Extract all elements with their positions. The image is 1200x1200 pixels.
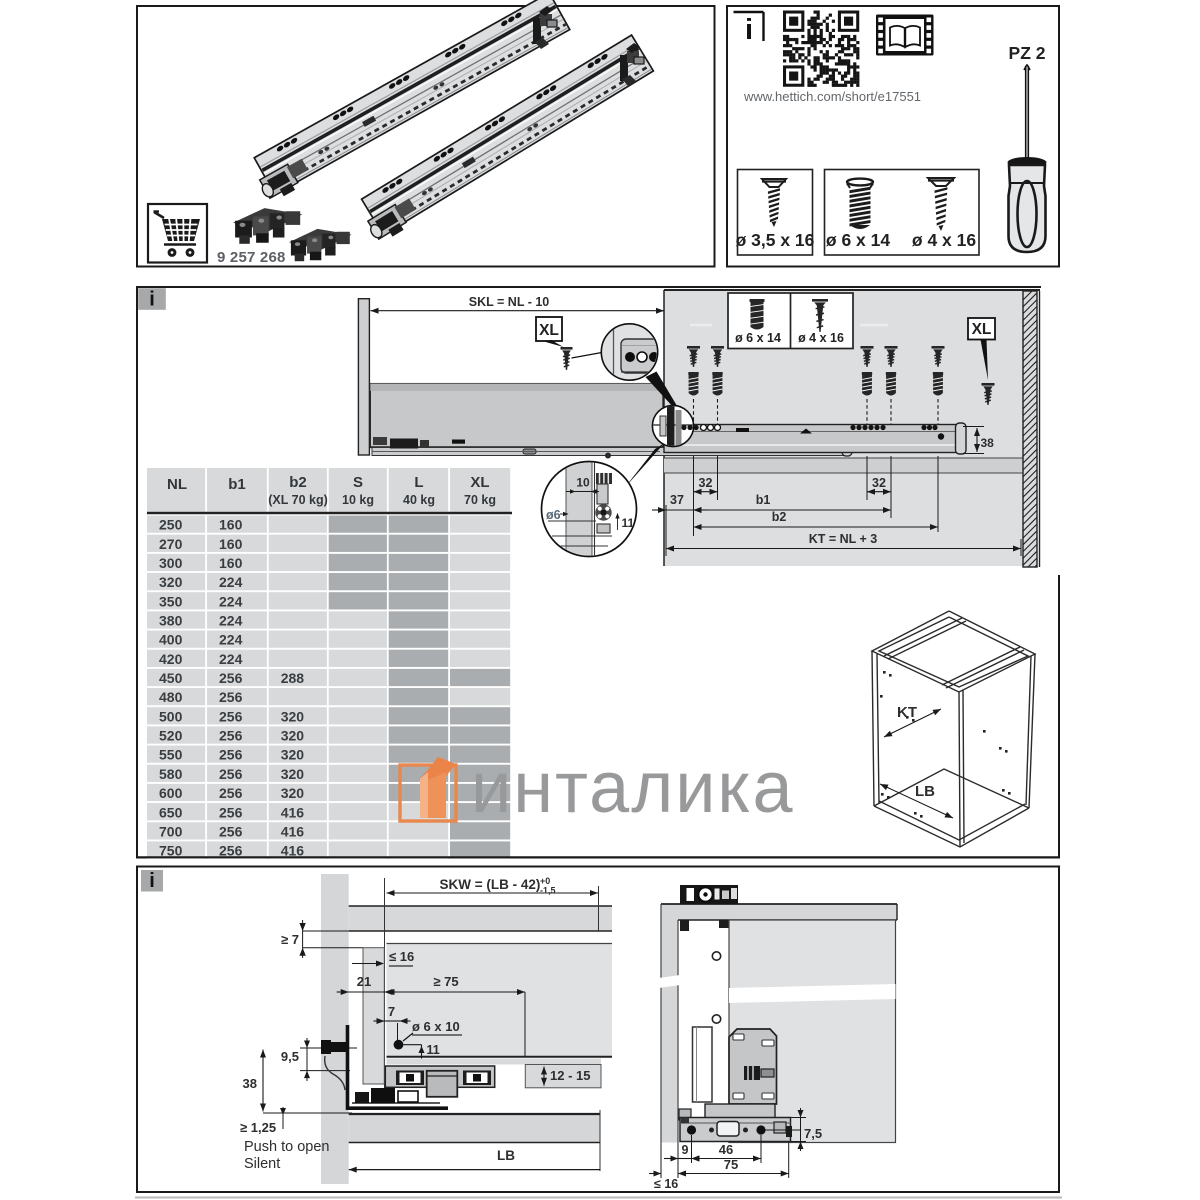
svg-text:9,5: 9,5: [281, 1049, 299, 1064]
svg-text:b2: b2: [289, 474, 307, 491]
svg-text:600: 600: [159, 785, 183, 801]
svg-text:580: 580: [159, 766, 183, 782]
svg-text:270: 270: [159, 536, 183, 552]
svg-text:256: 256: [219, 843, 243, 859]
svg-text:Push to open: Push to open: [244, 1139, 329, 1155]
svg-text:инталика: инталика: [471, 748, 795, 828]
svg-text:288: 288: [281, 670, 305, 686]
svg-text:320: 320: [159, 574, 183, 590]
svg-text:i: i: [149, 289, 155, 311]
svg-text:ø 4 x 16: ø 4 x 16: [798, 331, 844, 345]
svg-text:≤ 16: ≤ 16: [654, 1177, 678, 1191]
svg-text:9: 9: [682, 1143, 689, 1157]
svg-text:700: 700: [159, 823, 183, 839]
svg-text:224: 224: [219, 613, 243, 629]
svg-text:(XL 70 kg): (XL 70 kg): [268, 493, 328, 507]
svg-text:L: L: [414, 474, 423, 491]
svg-text:11: 11: [427, 1043, 440, 1057]
svg-text:32: 32: [699, 476, 713, 490]
svg-text:420: 420: [159, 651, 183, 667]
svg-text:350: 350: [159, 593, 183, 609]
svg-text:10 kg: 10 kg: [342, 493, 374, 507]
svg-text:256: 256: [219, 823, 243, 839]
svg-text:37: 37: [670, 493, 684, 507]
svg-text:38: 38: [981, 436, 995, 450]
svg-text:S: S: [353, 474, 363, 491]
svg-text:416: 416: [281, 823, 305, 839]
svg-text:450: 450: [159, 670, 183, 686]
svg-text:224: 224: [219, 632, 243, 648]
svg-text:160: 160: [219, 555, 243, 571]
svg-text:46: 46: [719, 1142, 733, 1157]
svg-text:256: 256: [219, 689, 243, 705]
svg-text:250: 250: [159, 517, 183, 533]
svg-text:i: i: [149, 870, 155, 892]
svg-text:≥ 1,25: ≥ 1,25: [240, 1120, 276, 1135]
svg-text:38: 38: [243, 1076, 257, 1091]
svg-text:-1,5: -1,5: [540, 886, 556, 896]
svg-text:320: 320: [281, 708, 305, 724]
svg-text:750: 750: [159, 843, 183, 859]
svg-text:520: 520: [159, 728, 183, 744]
svg-text:i: i: [745, 14, 753, 46]
svg-text:LB: LB: [497, 1148, 515, 1163]
svg-text:PZ 2: PZ 2: [1009, 43, 1046, 63]
svg-text:320: 320: [281, 728, 305, 744]
svg-text:ø 6 x 14: ø 6 x 14: [826, 230, 890, 250]
svg-text:416: 416: [281, 804, 305, 820]
svg-text:256: 256: [219, 766, 243, 782]
svg-text:224: 224: [219, 651, 243, 667]
svg-text:400: 400: [159, 632, 183, 648]
svg-text:10: 10: [576, 476, 590, 490]
svg-text:ø 6 x 14: ø 6 x 14: [735, 331, 781, 345]
svg-text:40 kg: 40 kg: [403, 493, 435, 507]
svg-text:320: 320: [281, 766, 305, 782]
svg-text:XL: XL: [470, 474, 489, 491]
svg-text:9 257 268: 9 257 268: [217, 249, 286, 266]
svg-text:650: 650: [159, 804, 183, 820]
svg-text:7,5: 7,5: [804, 1126, 822, 1141]
svg-text:ø 3,5 x 16: ø 3,5 x 16: [736, 230, 815, 250]
svg-text:75: 75: [724, 1157, 738, 1172]
svg-text:300: 300: [159, 555, 183, 571]
svg-text:ø 4 x 16: ø 4 x 16: [912, 230, 976, 250]
svg-text:XL: XL: [972, 321, 992, 338]
svg-text:7: 7: [388, 1004, 395, 1019]
svg-text:320: 320: [281, 785, 305, 801]
svg-text:256: 256: [219, 747, 243, 763]
svg-text:b1: b1: [228, 476, 246, 493]
svg-text:XL: XL: [539, 322, 559, 339]
svg-text:LB: LB: [915, 783, 935, 800]
svg-text:b1: b1: [756, 493, 771, 507]
svg-text:256: 256: [219, 785, 243, 801]
svg-text:ø 6 x 10: ø 6 x 10: [412, 1019, 460, 1034]
svg-text:≥ 7: ≥ 7: [281, 932, 299, 947]
svg-text:416: 416: [281, 843, 305, 859]
svg-text:70 kg: 70 kg: [464, 493, 496, 507]
svg-text:224: 224: [219, 593, 243, 609]
svg-text:256: 256: [219, 804, 243, 820]
svg-text:380: 380: [159, 613, 183, 629]
svg-text:KT = NL + 3: KT = NL + 3: [809, 532, 878, 546]
svg-text:256: 256: [219, 728, 243, 744]
svg-text:≤ 16: ≤ 16: [389, 949, 414, 964]
svg-text:160: 160: [219, 517, 243, 533]
svg-text:SKW = (LB - 42): SKW = (LB - 42): [440, 877, 541, 892]
svg-text:480: 480: [159, 689, 183, 705]
svg-text:256: 256: [219, 708, 243, 724]
svg-text:32: 32: [872, 476, 886, 490]
svg-text:320: 320: [281, 747, 305, 763]
svg-text:256: 256: [219, 670, 243, 686]
svg-text:SKL = NL - 10: SKL = NL - 10: [469, 295, 550, 309]
svg-text:≥ 75: ≥ 75: [433, 974, 458, 989]
svg-text:Silent: Silent: [244, 1156, 280, 1172]
svg-text:21: 21: [357, 974, 371, 989]
svg-text:KT: KT: [897, 704, 917, 721]
svg-text:+0: +0: [540, 876, 550, 886]
svg-text:160: 160: [219, 536, 243, 552]
svg-text:ø6: ø6: [546, 508, 561, 522]
svg-text:12 - 15: 12 - 15: [550, 1068, 590, 1083]
svg-text:224: 224: [219, 574, 243, 590]
svg-text:NL: NL: [167, 476, 187, 493]
svg-text:b2: b2: [772, 510, 787, 524]
svg-text:500: 500: [159, 708, 183, 724]
svg-text:www.hettich.com/short/e17551: www.hettich.com/short/e17551: [743, 89, 921, 104]
svg-text:550: 550: [159, 747, 183, 763]
